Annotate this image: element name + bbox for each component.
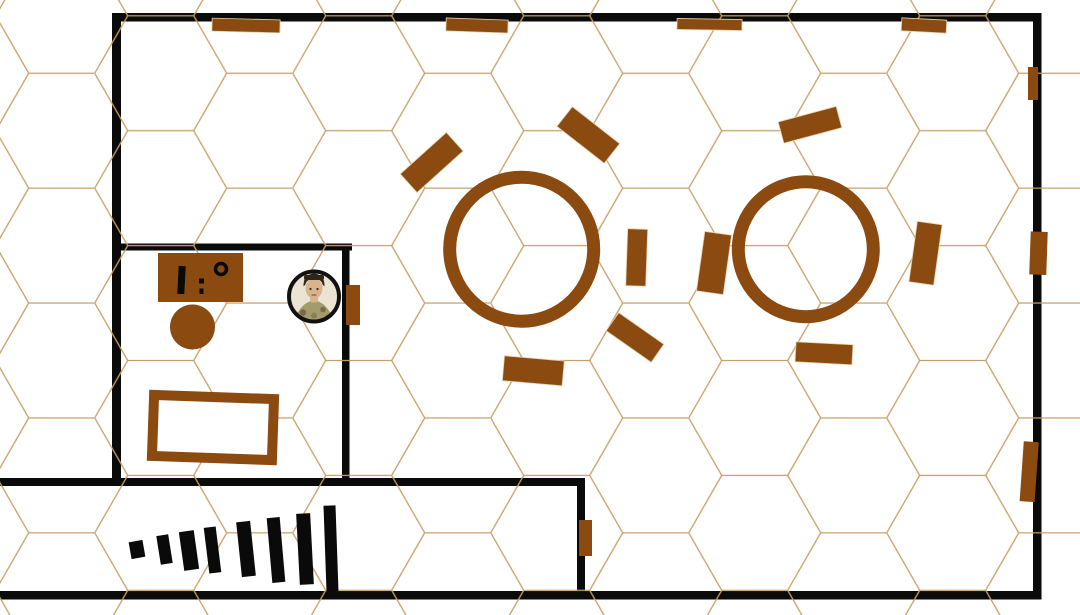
rect-table-outline — [152, 395, 274, 460]
map-canvas — [0, 0, 1080, 615]
character-token[interactable] — [289, 272, 339, 323]
chair-table1-e — [626, 229, 648, 287]
chair-table2-s — [795, 342, 853, 365]
bench-top-3 — [677, 18, 742, 30]
door-bar-room — [346, 285, 360, 325]
bench-top-2 — [446, 18, 508, 33]
chair-table1-s — [502, 356, 564, 386]
hex-grid-overlay — [0, 0, 1080, 615]
door-east-1 — [1028, 67, 1038, 100]
stair-bar-1 — [129, 540, 146, 559]
door-east-2 — [1029, 231, 1047, 275]
bench-top-4 — [901, 18, 947, 33]
hex-map — [0, 0, 1080, 615]
bench-top-1 — [212, 18, 280, 33]
bar-counter — [158, 253, 243, 302]
glass-dot-icon-2 — [200, 289, 204, 295]
glass-dot-icon-1 — [199, 279, 204, 284]
bottle-icon — [177, 266, 185, 294]
bar-stool — [170, 305, 215, 350]
door-corridor — [579, 520, 592, 556]
hex-grid — [0, 0, 1080, 615]
